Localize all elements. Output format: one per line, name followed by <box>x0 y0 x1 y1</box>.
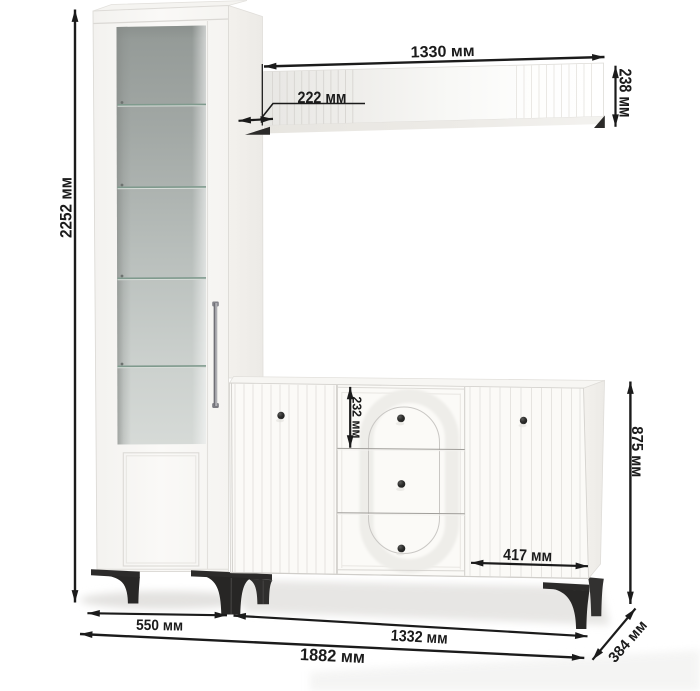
svg-text:238 мм: 238 мм <box>616 69 636 118</box>
svg-text:232 мм: 232 мм <box>350 397 365 439</box>
svg-text:417 мм: 417 мм <box>503 547 552 565</box>
svg-text:2252 мм: 2252 мм <box>57 177 76 238</box>
svg-text:875 мм: 875 мм <box>628 426 645 477</box>
svg-text:222 мм: 222 мм <box>298 88 347 107</box>
svg-text:550 мм: 550 мм <box>136 617 183 635</box>
svg-text:1330 мм: 1330 мм <box>410 43 474 62</box>
svg-text:1332 мм: 1332 мм <box>390 628 448 648</box>
svg-text:1882 мм: 1882 мм <box>300 645 366 667</box>
